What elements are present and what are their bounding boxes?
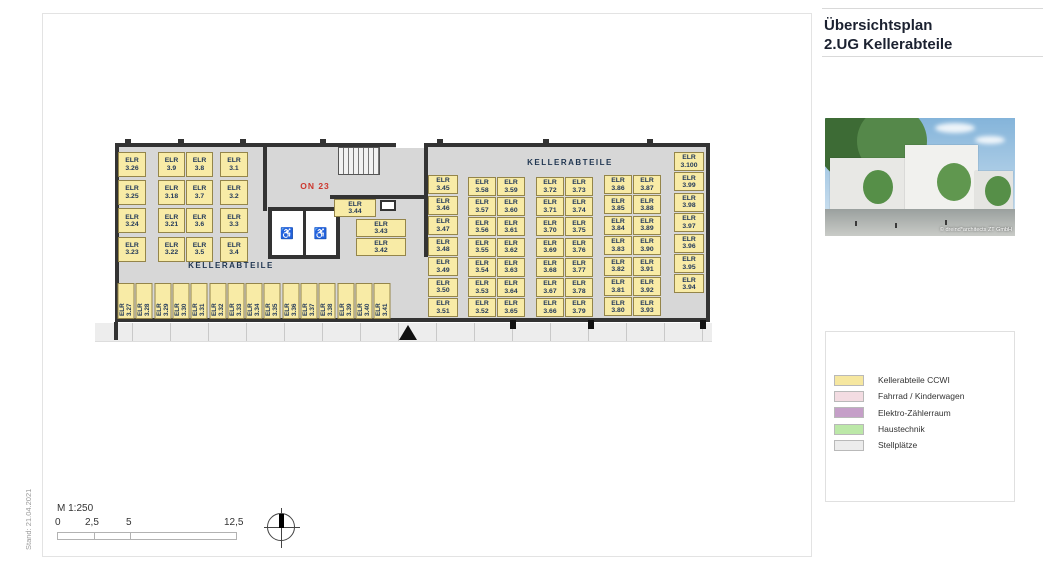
storage-cell-3-23: ELR3.23 (118, 237, 146, 262)
storage-cell-3-83: ELR3.83 (604, 236, 632, 255)
storage-cell-3-86: ELR3.86 (604, 175, 632, 194)
storage-cell-3-84: ELR3.84 (604, 216, 632, 235)
storage-cell-3-9: ELR3.9 (158, 152, 185, 177)
interior-wall (263, 143, 267, 211)
storage-cell-3-7: ELR3.7 (186, 180, 213, 205)
storage-cell-3-47: ELR3.47 (428, 216, 458, 235)
storage-cell-3-63: ELR3.63 (497, 258, 525, 277)
legend-swatch-stellplaetze (834, 440, 864, 451)
storage-cell-3-69: ELR3.69 (536, 238, 564, 257)
north-compass-icon (266, 508, 298, 548)
storage-cell-3-59: ELR3.59 (497, 177, 525, 196)
storage-cell-3-36: ELR 3.36 (283, 283, 300, 319)
storage-cell-3-34: ELR 3.34 (246, 283, 263, 319)
storage-cell-3-35: ELR 3.35 (264, 283, 281, 319)
storage-cell-3-96: ELR3.96 (674, 234, 704, 253)
title-line2: 2.UG Kellerabteile (824, 35, 952, 54)
storage-cell-3-95: ELR3.95 (674, 254, 704, 273)
legend: Kellerabteile CCWIFahrrad / KinderwagenE… (825, 331, 1015, 502)
building-rendering: © dreind*architects ZT GmbH (825, 118, 1015, 236)
room-label-on23: ON 23 (291, 181, 339, 191)
page-title: Übersichtsplan 2.UG Kellerabteile (824, 16, 952, 54)
storage-cell-3-75: ELR3.75 (565, 217, 593, 236)
storage-cell-3-54: ELR3.54 (468, 258, 496, 277)
storage-cell-3-72: ELR3.72 (536, 177, 564, 196)
zone-label-left: KELLERABTEILE (171, 261, 291, 270)
storage-cell-3-6: ELR3.6 (186, 208, 213, 233)
storage-cell-3-26: ELR3.26 (118, 152, 146, 177)
stand-date-note: Stand: 21.04.2021 (24, 462, 36, 550)
scale-tick-5: 5 (126, 517, 132, 528)
storage-cell-3-4: ELR3.4 (220, 237, 248, 262)
storage-cell-3-61: ELR3.61 (497, 217, 525, 236)
storage-cell-3-100: ELR3.100 (674, 152, 704, 171)
storage-cell-3-67: ELR3.67 (536, 278, 564, 297)
entrance-arrow (399, 325, 417, 340)
legend-item-haustechnik: Haustechnik (826, 421, 1014, 437)
storage-cell-3-88: ELR3.88 (633, 195, 661, 214)
legend-swatch-fahrrad-kinderwagen (834, 391, 864, 402)
storage-cell-3-87: ELR3.87 (633, 175, 661, 194)
title-rule-bottom (822, 56, 1043, 57)
storage-cell-3-21: ELR3.21 (158, 208, 185, 233)
storage-cell-3-55: ELR3.55 (468, 238, 496, 257)
storage-cell-3-65: ELR3.65 (497, 298, 525, 317)
storage-cell-3-77: ELR3.77 (565, 258, 593, 277)
storage-cell-3-85: ELR3.85 (604, 195, 632, 214)
storage-cell-3-28: ELR 3.28 (136, 283, 153, 319)
storage-cell-3-94: ELR3.94 (674, 274, 704, 293)
storage-cell-3-89: ELR3.89 (633, 216, 661, 235)
scale-bar (57, 532, 237, 540)
title-line1: Übersichtsplan (824, 16, 952, 35)
storage-cell-3-25: ELR3.25 (118, 180, 146, 205)
legend-label-haustechnik: Haustechnik (878, 424, 925, 434)
storage-cell-3-44: ELR3.44 (334, 199, 376, 217)
storage-cell-3-92: ELR3.92 (633, 277, 661, 296)
scale-tick-0: 0 (55, 517, 61, 528)
storage-cell-3-46: ELR3.46 (428, 196, 458, 215)
shaft-box (380, 200, 396, 211)
storage-cell-3-3: ELR3.3 (220, 208, 248, 233)
storage-cell-3-56: ELR3.56 (468, 217, 496, 236)
storage-cell-3-42: ELR3.42 (356, 238, 406, 256)
wall-stub (114, 322, 118, 340)
storage-cell-3-68: ELR3.68 (536, 258, 564, 277)
storage-cell-3-33: ELR 3.33 (228, 283, 245, 319)
scale-tick-12-5: 12,5 (224, 517, 243, 528)
door-opening (396, 142, 424, 148)
column-mark (437, 139, 443, 146)
storage-cell-3-99: ELR3.99 (674, 172, 704, 191)
wheelchair-icon: ♿ (272, 211, 303, 255)
storage-cell-3-5: ELR3.5 (186, 237, 213, 262)
legend-swatch-haustechnik (834, 424, 864, 435)
storage-cell-3-43: ELR3.43 (356, 219, 406, 237)
storage-cell-3-51: ELR3.51 (428, 298, 458, 317)
staircase (338, 147, 380, 175)
storage-cell-3-91: ELR3.91 (633, 257, 661, 276)
legend-item-stellplaetze: Stellplätze (826, 437, 1014, 453)
storage-cell-3-38: ELR 3.38 (319, 283, 336, 319)
storage-cell-3-37: ELR 3.37 (301, 283, 318, 319)
storage-cell-3-1: ELR3.1 (220, 152, 248, 177)
column-post (510, 320, 516, 329)
column-post (700, 320, 706, 329)
zone-label-right: KELLERABTEILE (510, 158, 630, 167)
storage-cell-3-32: ELR 3.32 (210, 283, 227, 319)
storage-cell-3-81: ELR3.81 (604, 277, 632, 296)
column-mark (125, 139, 131, 146)
column-mark (240, 139, 246, 146)
legend-label-elektro-zaehlerraum: Elektro-Zählerraum (878, 408, 951, 418)
storage-cell-3-40: ELR 3.40 (356, 283, 373, 319)
photo-credit: © dreind*architects ZT GmbH (940, 227, 1012, 233)
storage-cell-3-52: ELR3.52 (468, 298, 496, 317)
legend-item-kellerabteile-ccwi: Kellerabteile CCWI (826, 372, 1014, 388)
title-rule-top (822, 8, 1043, 9)
storage-cell-3-50: ELR3.50 (428, 278, 458, 297)
storage-cell-3-27: ELR 3.27 (118, 283, 135, 319)
legend-label-fahrrad-kinderwagen: Fahrrad / Kinderwagen (878, 391, 964, 401)
scale-label: M 1:250 (57, 503, 93, 514)
storage-cell-3-62: ELR3.62 (497, 238, 525, 257)
legend-label-stellplaetze: Stellplätze (878, 440, 917, 450)
storage-cell-3-78: ELR3.78 (565, 278, 593, 297)
legend-label-kellerabteile-ccwi: Kellerabteile CCWI (878, 375, 950, 385)
wc-rooms: ♿ ♿ (268, 207, 340, 259)
storage-cell-3-58: ELR3.58 (468, 177, 496, 196)
storage-cell-3-22: ELR3.22 (158, 237, 185, 262)
storage-cell-3-64: ELR3.64 (497, 278, 525, 297)
storage-cell-3-79: ELR3.79 (565, 298, 593, 317)
storage-cell-3-90: ELR3.90 (633, 236, 661, 255)
storage-cell-3-82: ELR3.82 (604, 257, 632, 276)
storage-cell-3-93: ELR3.93 (633, 297, 661, 316)
storage-cell-3-29: ELR 3.29 (155, 283, 172, 319)
column-post (588, 320, 594, 329)
storage-cell-3-74: ELR3.74 (565, 197, 593, 216)
storage-cell-3-8: ELR3.8 (186, 152, 213, 177)
storage-cell-3-49: ELR3.49 (428, 257, 458, 276)
storage-cell-3-31: ELR 3.31 (191, 283, 208, 319)
storage-cell-3-71: ELR3.71 (536, 197, 564, 216)
legend-swatch-kellerabteile-ccwi (834, 375, 864, 386)
storage-cell-3-53: ELR3.53 (468, 278, 496, 297)
storage-cell-3-39: ELR 3.39 (338, 283, 355, 319)
storage-cell-3-73: ELR3.73 (565, 177, 593, 196)
storage-cell-3-18: ELR3.18 (158, 180, 185, 205)
storage-cell-3-24: ELR3.24 (118, 208, 146, 233)
storage-cell-3-45: ELR3.45 (428, 175, 458, 194)
scale-tick-2-5: 2,5 (85, 517, 99, 528)
storage-cell-3-66: ELR3.66 (536, 298, 564, 317)
legend-item-fahrrad-kinderwagen: Fahrrad / Kinderwagen (826, 388, 1014, 404)
storage-cell-3-97: ELR3.97 (674, 213, 704, 232)
column-mark (543, 139, 549, 146)
storage-cell-3-48: ELR3.48 (428, 237, 458, 256)
storage-cell-3-60: ELR3.60 (497, 197, 525, 216)
column-mark (178, 139, 184, 146)
column-mark (320, 139, 326, 146)
storage-cell-3-98: ELR3.98 (674, 193, 704, 212)
storage-cell-3-41: ELR 3.41 (374, 283, 391, 319)
storage-cell-3-2: ELR3.2 (220, 180, 248, 205)
legend-item-elektro-zaehlerraum: Elektro-Zählerraum (826, 405, 1014, 421)
column-mark (647, 139, 653, 146)
storage-cell-3-57: ELR3.57 (468, 197, 496, 216)
storage-cell-3-70: ELR3.70 (536, 217, 564, 236)
overview-plan-sheet: { "document": { "stand_note": "Stand: 21… (0, 0, 1055, 576)
storage-cell-3-76: ELR3.76 (565, 238, 593, 257)
legend-swatch-elektro-zaehlerraum (834, 407, 864, 418)
storage-cell-3-80: ELR3.80 (604, 297, 632, 316)
storage-cell-3-30: ELR 3.30 (173, 283, 190, 319)
wheelchair-icon: ♿ (306, 211, 337, 255)
